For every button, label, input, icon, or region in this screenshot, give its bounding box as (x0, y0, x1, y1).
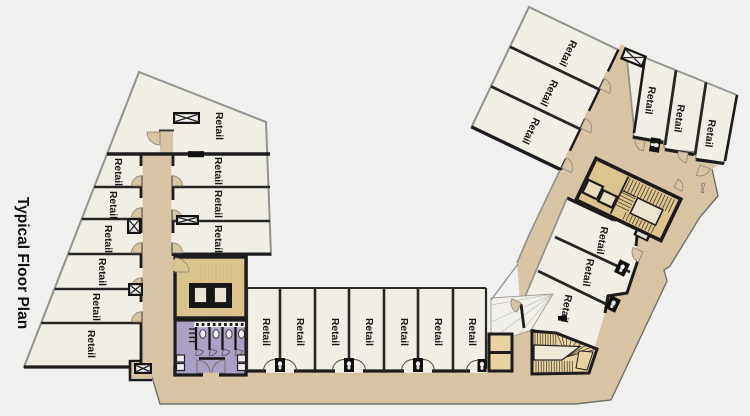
svg-text:Retail: Retail (466, 318, 477, 346)
svg-text:Retail: Retail (363, 318, 374, 346)
svg-text:Retail: Retail (432, 318, 443, 346)
svg-text:Retail: Retail (102, 225, 113, 253)
svg-text:Typical Floor Plan: Typical Floor Plan (14, 197, 31, 329)
svg-text:Retail: Retail (213, 112, 224, 140)
svg-text:Retail: Retail (107, 191, 118, 219)
svg-text:Retail: Retail (212, 190, 223, 218)
svg-text:Retail: Retail (212, 157, 223, 185)
svg-text:Retail: Retail (398, 318, 409, 346)
svg-text:Retail: Retail (90, 293, 101, 321)
svg-text:Retail: Retail (112, 158, 123, 186)
svg-text:Retail: Retail (85, 330, 96, 358)
svg-text:Retail: Retail (329, 318, 340, 346)
svg-text:Retail: Retail (294, 318, 305, 346)
svg-text:Grez: Grez (699, 183, 705, 194)
svg-text:Retail: Retail (96, 258, 107, 286)
svg-text:Retail: Retail (260, 318, 271, 346)
svg-text:Retail: Retail (212, 225, 223, 253)
